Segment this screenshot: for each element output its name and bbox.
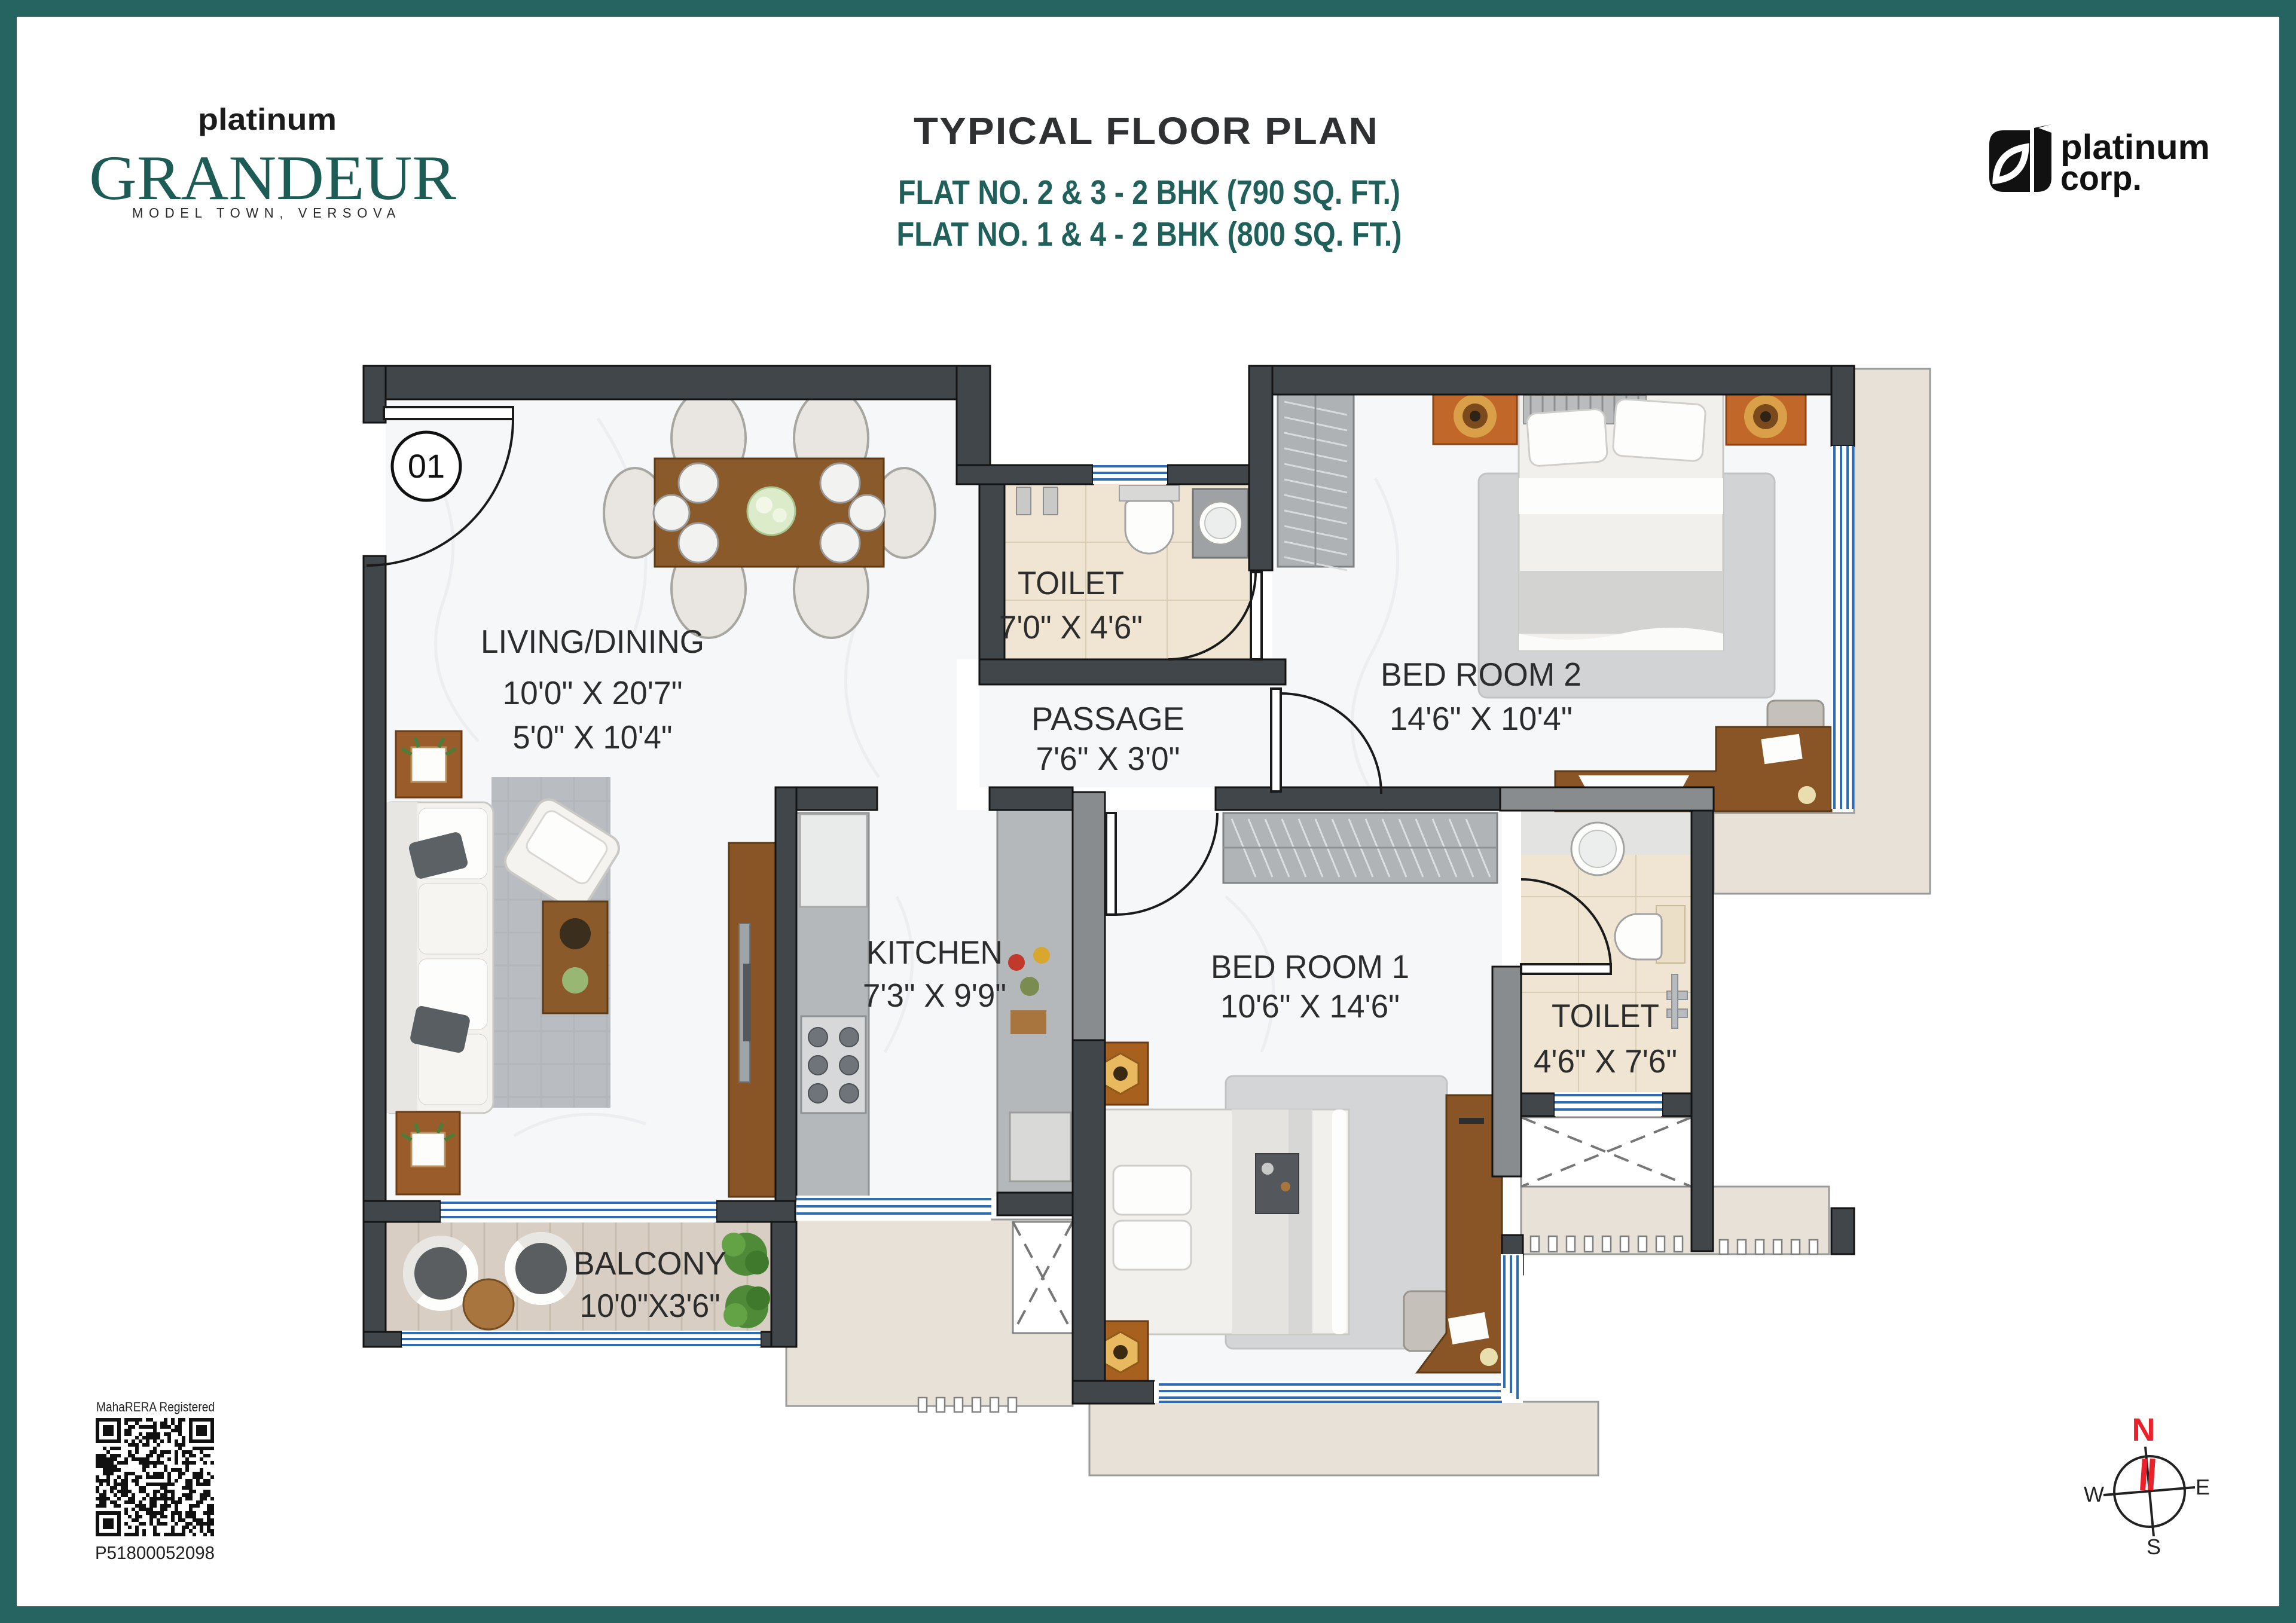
- svg-text:S: S: [2147, 1535, 2161, 1559]
- svg-text:GRANDEUR: GRANDEUR: [89, 143, 456, 213]
- svg-text:P51800052098: P51800052098: [95, 1542, 215, 1563]
- svg-text:TYPICAL FLOOR PLAN: TYPICAL FLOOR PLAN: [914, 109, 1379, 152]
- svg-text:KITCHEN: KITCHEN: [866, 934, 1003, 971]
- svg-text:BED ROOM 1: BED ROOM 1: [1211, 948, 1409, 985]
- svg-text:10'0" X 20'7": 10'0" X 20'7": [503, 674, 683, 711]
- svg-text:W: W: [2084, 1482, 2104, 1506]
- svg-text:PASSAGE: PASSAGE: [1031, 700, 1184, 737]
- svg-text:BED ROOM 2: BED ROOM 2: [1381, 656, 1581, 693]
- svg-text:TOILET: TOILET: [1552, 997, 1659, 1034]
- svg-text:corp.: corp.: [2060, 159, 2142, 198]
- svg-text:4'6" X 7'6": 4'6" X 7'6": [1534, 1043, 1677, 1080]
- svg-text:7'3" X 9'9": 7'3" X 9'9": [863, 977, 1006, 1014]
- svg-text:N: N: [2132, 1412, 2155, 1448]
- svg-text:FLAT NO. 2 & 3 - 2 BHK (790 SQ: FLAT NO. 2 & 3 - 2 BHK (790 SQ. FT.): [898, 173, 1400, 212]
- svg-text:7'6" X 3'0": 7'6" X 3'0": [1036, 740, 1180, 777]
- svg-text:BALCONY: BALCONY: [573, 1245, 726, 1282]
- svg-text:14'6" X 10'4": 14'6" X 10'4": [1390, 700, 1573, 737]
- svg-text:MODEL TOWN, VERSOVA: MODEL TOWN, VERSOVA: [132, 205, 401, 221]
- svg-text:01: 01: [408, 447, 445, 485]
- svg-text:10'6" X 14'6": 10'6" X 14'6": [1220, 988, 1400, 1025]
- svg-text:platinum: platinum: [198, 102, 337, 136]
- svg-text:MahaRERA Registered: MahaRERA Registered: [96, 1399, 215, 1414]
- svg-text:E: E: [2196, 1475, 2210, 1499]
- svg-text:TOILET: TOILET: [1018, 564, 1124, 601]
- svg-text:LIVING/DINING: LIVING/DINING: [481, 623, 704, 660]
- svg-text:FLAT NO. 1 & 4 - 2 BHK (800 SQ: FLAT NO. 1 & 4 - 2 BHK (800 SQ. FT.): [897, 215, 1402, 253]
- svg-text:5'0" X 10'4": 5'0" X 10'4": [513, 719, 673, 756]
- svg-text:7'0" X 4'6": 7'0" X 4'6": [999, 609, 1143, 646]
- svg-text:10'0"X3'6": 10'0"X3'6": [580, 1287, 720, 1324]
